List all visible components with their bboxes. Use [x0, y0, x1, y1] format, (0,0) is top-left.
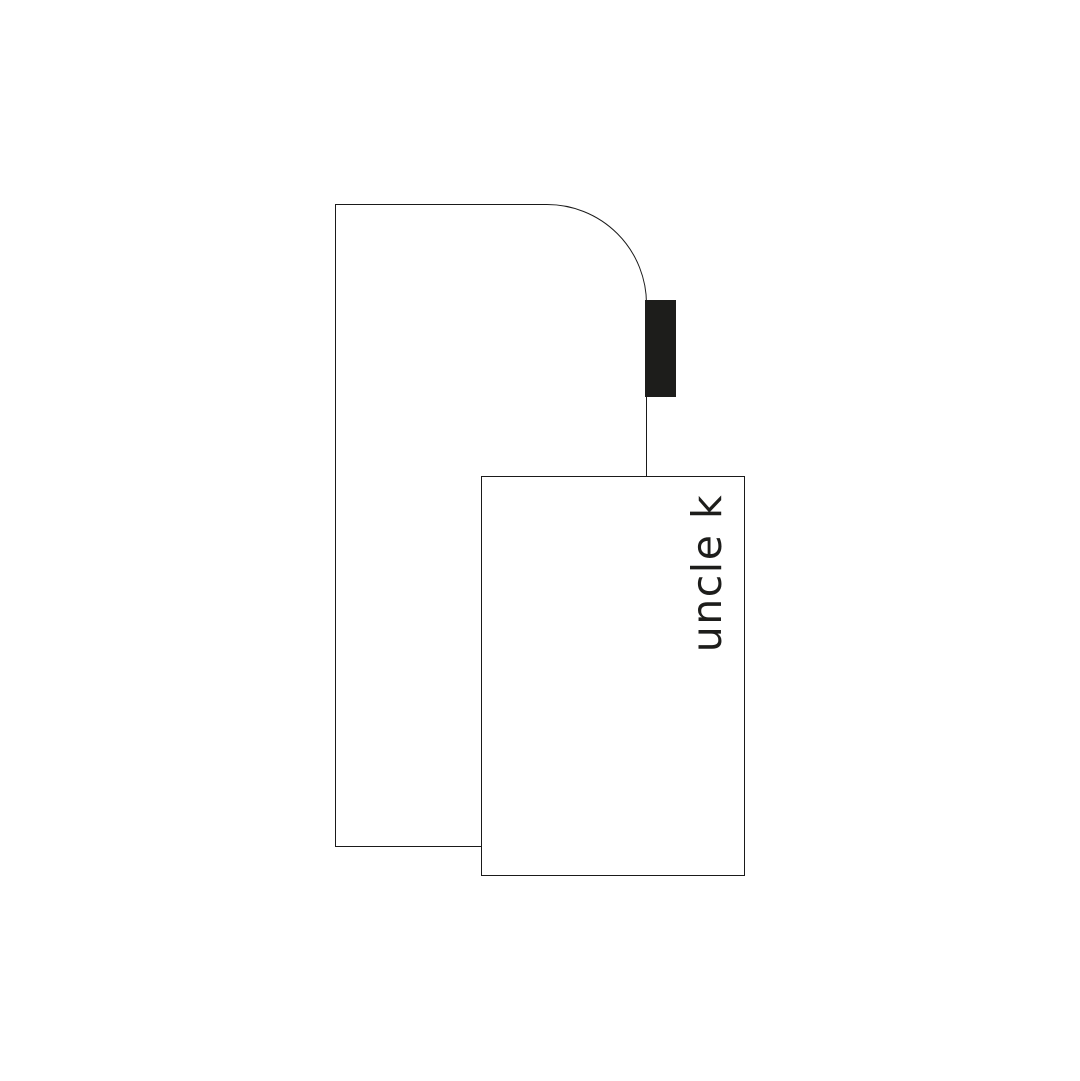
- canvas: uncle k: [0, 0, 1080, 1081]
- black-tab: [645, 300, 676, 397]
- brand-text: uncle k: [683, 494, 731, 652]
- card: uncle k: [481, 476, 745, 876]
